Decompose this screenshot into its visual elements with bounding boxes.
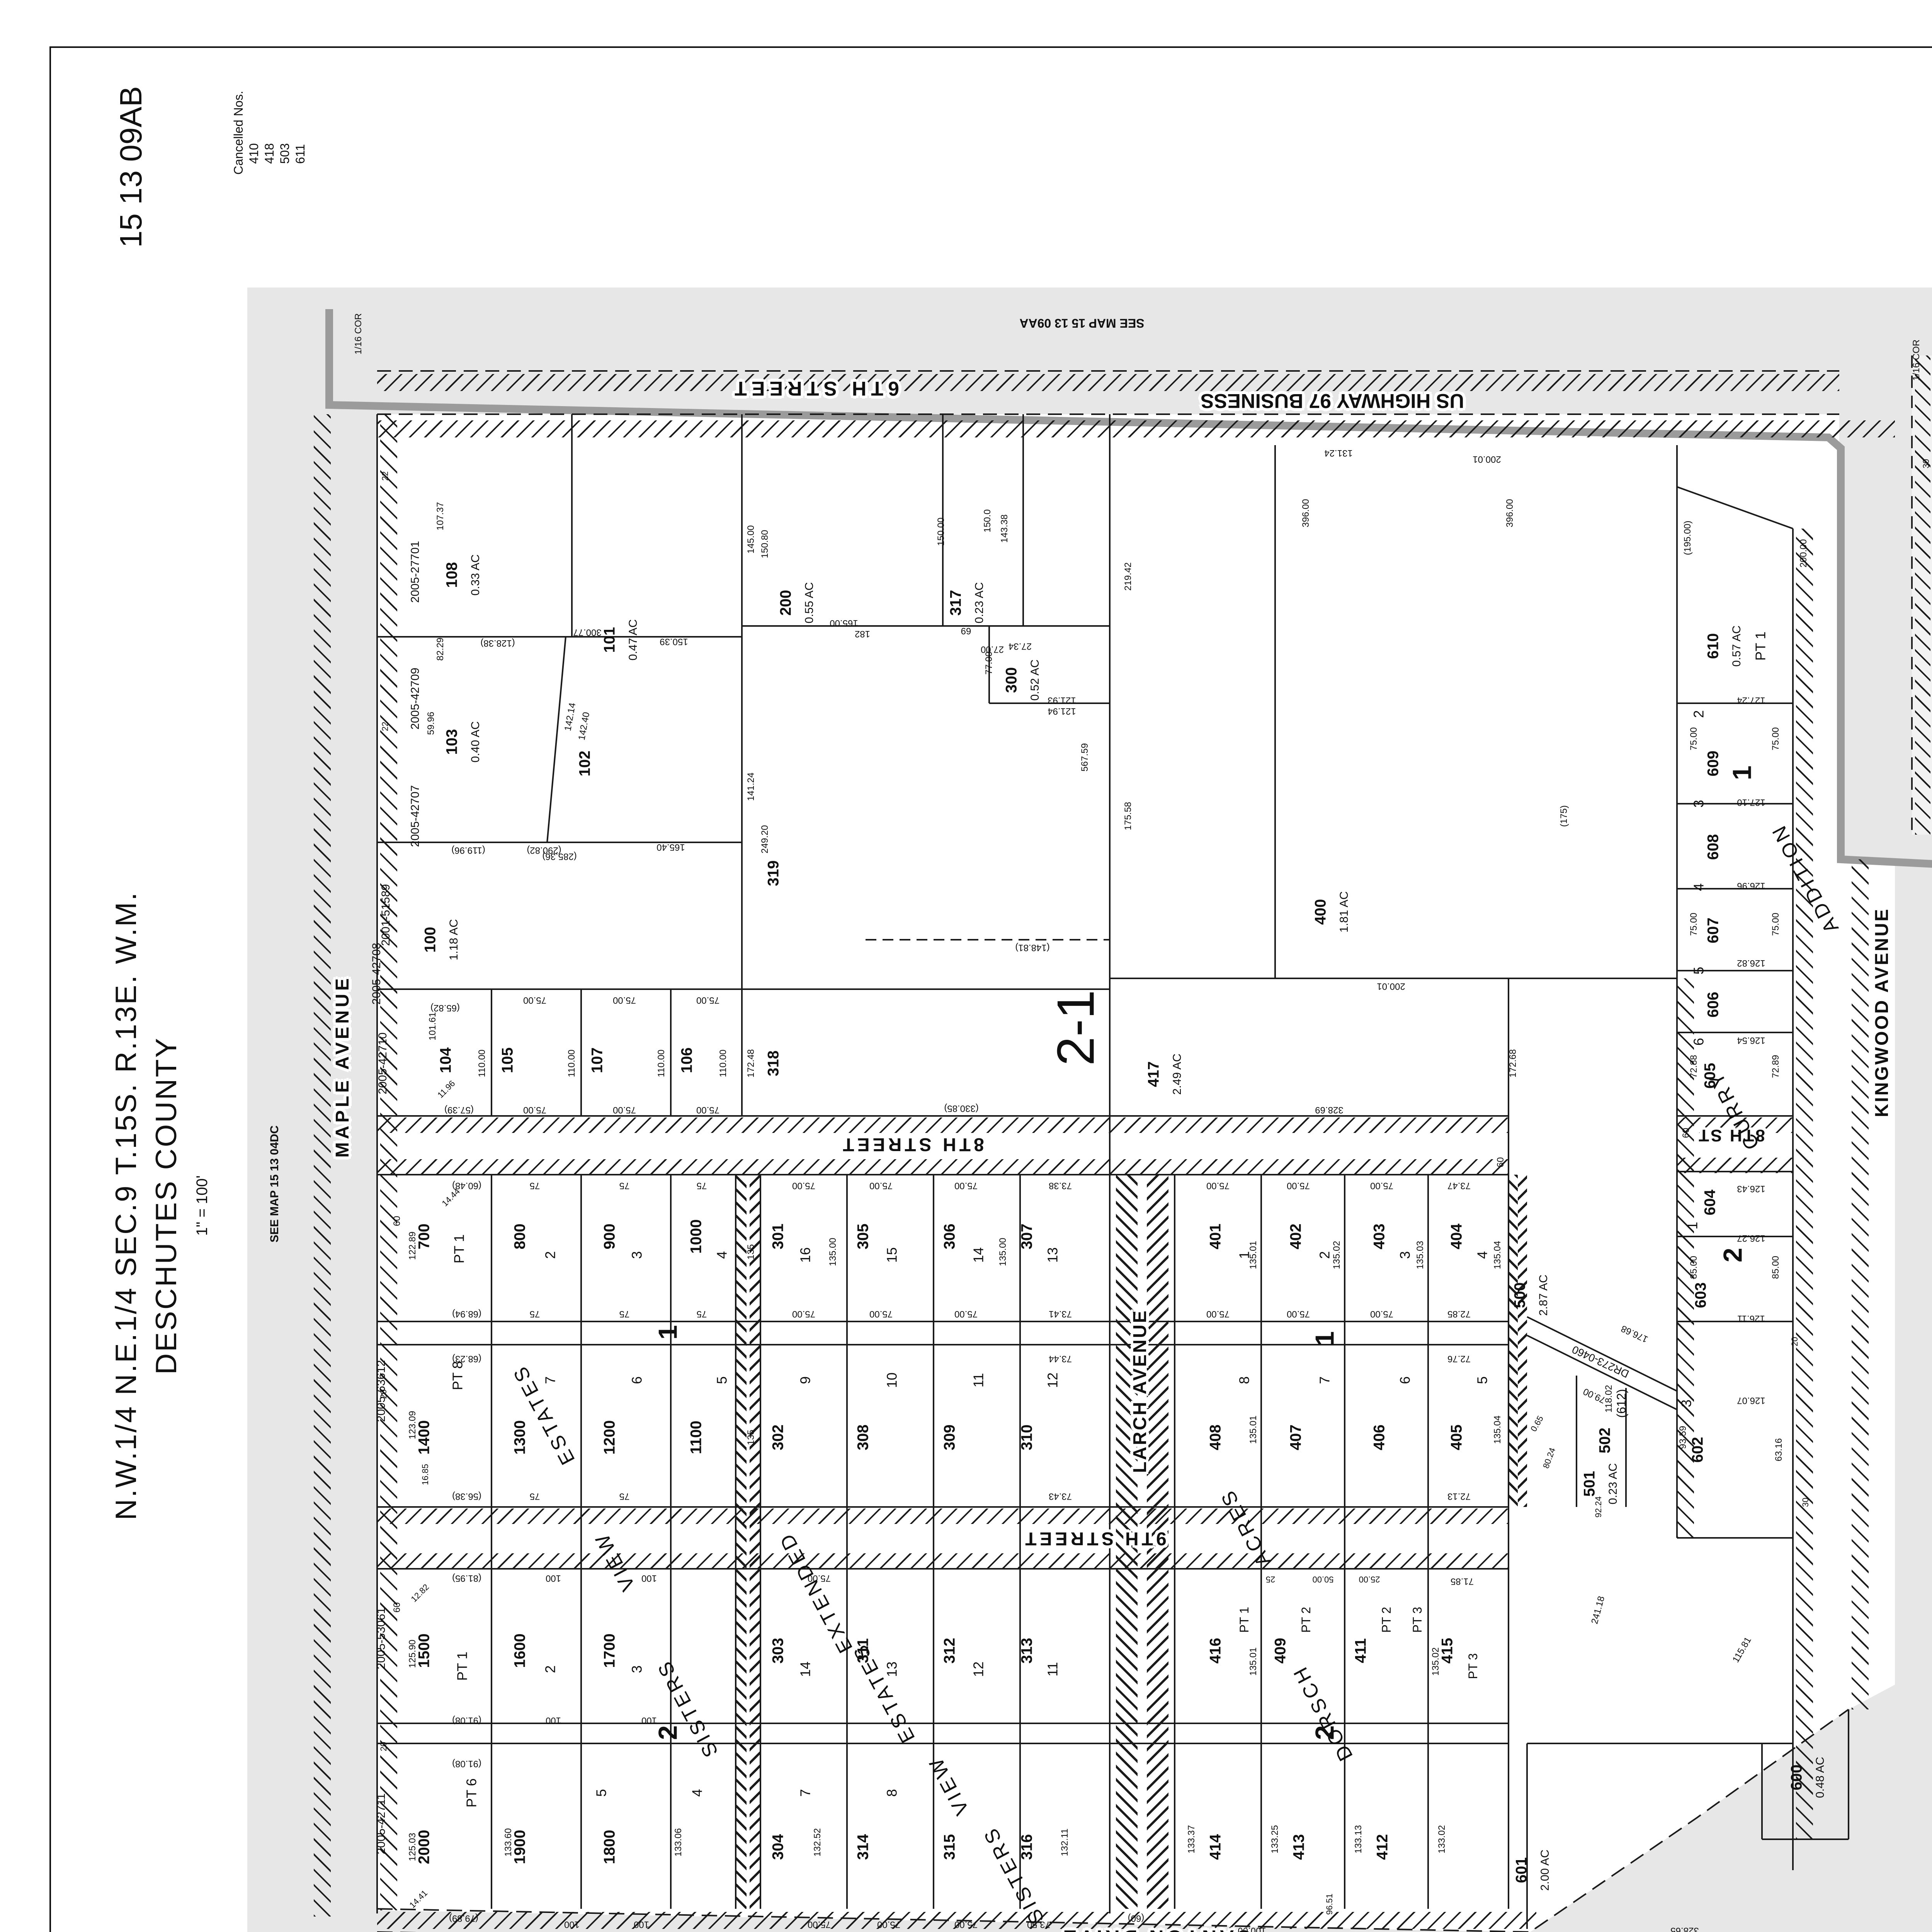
map-label: 20 [1793,1337,1802,1347]
map-label: 126.96 [1737,879,1765,889]
map-label: 125.03 [409,1833,419,1861]
map-label: 135.01 [1250,1647,1260,1675]
map-label: 85.00 [1772,1256,1782,1279]
map-label: 407 [1290,1425,1306,1451]
map-label: 25.00 [1359,1572,1380,1581]
map-label: 4 [691,1789,706,1797]
map-label: 2005-53061 [376,1607,388,1669]
map-label: 145.00 [748,525,758,553]
map-label: 135.04 [1494,1415,1504,1444]
map-label: 75.00 [954,1918,978,1928]
map-label: 75.00 [696,993,719,1003]
map-label: 13 [1047,1247,1062,1263]
map-label: 2005-42709 [410,668,422,730]
map-label: 93.59 [1680,1426,1690,1449]
map-label: 300.77 [573,626,601,636]
map-label: (60) [1128,1912,1145,1922]
map-label: 72.13 [1447,1490,1471,1500]
map-label: 3 [1680,1400,1696,1407]
map-label: 2 [1319,1251,1334,1259]
map-label: 2 [655,1725,683,1740]
map-label: 1.18 AC [448,919,461,961]
map-label: 9TH STREET [1022,1528,1166,1548]
map-label: 135.00 [1000,1238,1010,1266]
map-label: 301 [772,1224,789,1250]
map-label: US HIGHWAY 97 BUSINESS [1201,389,1464,411]
map-label: 2005-42710 [377,1032,389,1094]
map-label: 303 [772,1638,789,1664]
map-label: 75.00 [1206,1307,1230,1317]
plat-map-sheet: 15 13 09AB 15 13 09AB Cancelled Nos. 410… [0,0,1932,1932]
map-label: 77.00 [986,651,996,675]
map-label: 501 [1583,1471,1600,1497]
map-label: 302 [772,1425,789,1451]
map-label: 175.58 [1125,802,1135,830]
map-label: 126.43 [1737,1182,1765,1192]
map-label: 502 [1599,1428,1616,1454]
map-label: 103 [446,729,463,755]
map-label: 0.33 AC [470,554,482,596]
map-label: 133.06 [675,1828,685,1856]
map-label: 14.41 [410,1890,431,1912]
map-label: 69 [961,624,971,634]
map-label: 72.89 [1772,1055,1782,1078]
map-label: 14.44 [442,1189,464,1210]
map-label: 401 [1209,1224,1226,1250]
map-label: 1500 [418,1634,435,1668]
map-label: 609 [1707,751,1724,777]
map-label: SISTERS [979,1822,1049,1927]
map-label: 311 [857,1638,874,1663]
map-label: 182 [855,627,870,637]
map-label: 135.02 [1333,1241,1344,1269]
map-label: 20 [382,1742,391,1752]
map-label: 73.44 [1049,1352,1072,1362]
map-label: 75 [697,1307,707,1317]
map-label: 80.24 [1544,1447,1560,1471]
map-label: (330.85) [944,1102,978,1112]
map-label: 0.57 AC [1731,626,1743,667]
map-label: PT 1 [1755,631,1770,660]
map-label: 396.00 [1303,499,1313,527]
map-label: 30 [1804,1498,1813,1507]
map-label: (91.08) [452,1757,481,1767]
map-label: 415 [1441,1638,1458,1664]
map-label: 249.20 [762,825,772,853]
map-label: VIEW [925,1752,974,1818]
map-label: 3 [1693,800,1708,808]
map-label: 142.40 [578,712,593,742]
map-label: 110.00 [479,1049,489,1077]
map-label: 172.68 [1510,1049,1520,1077]
map-label: 5 [595,1789,611,1797]
map-label: 9 [799,1376,815,1384]
map-label: 133.37 [1188,1825,1198,1853]
map-label: 142.14 [565,702,579,732]
map-label: 75.00 [1370,1179,1393,1189]
map-label: 118.02 [1605,1385,1616,1413]
map-label: 2 [1720,1248,1748,1262]
map-label: PT 1 [453,1234,468,1263]
map-label: 102 [579,751,595,777]
map-label: 73.38 [1049,1179,1072,1189]
map-label: 2 [544,1665,560,1673]
map-label: 72.76 [1447,1352,1471,1362]
map-label: 2001-51589 [380,884,393,946]
map-label: 100 [641,1714,657,1724]
map-label: 135.04 [1494,1241,1504,1269]
map-label: 8 [886,1789,901,1797]
map-label: 1400 [418,1420,435,1455]
map-label: 6 [631,1376,646,1384]
map-label: 6 [1693,1038,1708,1046]
map-label: (195.00) [1684,520,1694,555]
map-label: 200.00 [1800,539,1810,567]
map-label: KINGWOOD AVENUE [1872,908,1893,1117]
map-label: 2 [544,1251,560,1259]
map-label: 800 [514,1224,531,1250]
map-label: 319 [767,861,784,886]
map-label: 15 [886,1247,901,1263]
map-label: 313 [1021,1638,1037,1664]
map-label: 300 [1005,667,1022,693]
map-label: 135.03 [1417,1241,1427,1269]
map-label: 2.00 AC [1539,1850,1552,1891]
map-label: 3 [631,1665,646,1673]
map-label: 50.00 [1312,1572,1333,1581]
map-label: 606 [1707,992,1724,1018]
map-label: 1 [1729,765,1757,780]
map-label: SEE MAP 15 13 04DC [269,1126,281,1243]
map-label: 603 [1695,1282,1711,1308]
map-label: 133.13 [1355,1825,1365,1853]
map-label: 126.54 [1737,1034,1765,1044]
map-label: 71.85 [1451,1575,1474,1585]
map-label: 318 [767,1051,784,1077]
map-label: 75.00 [877,1918,900,1928]
map-label: 11.96 [438,1081,459,1102]
map-label: 121.94 [1048,704,1076,714]
map-label: PT 2 [1301,1607,1315,1633]
map-label: 14 [973,1247,988,1263]
map-label: 123.09 [409,1411,419,1439]
map-label: 100.00 [1238,1924,1266,1932]
map-label: 328.69 [1315,1103,1343,1113]
map-label: 110.00 [658,1049,668,1077]
map-label: 75.00 [613,1103,636,1113]
map-label: 1/16 COR [355,313,365,355]
map-label: 604 [1704,1190,1721,1216]
map-label: 75.00 [523,993,546,1003]
map-label: 126.11 [1737,1312,1765,1322]
map-label: 60 [1497,1157,1507,1168]
map-label: 72.85 [1447,1307,1471,1317]
map-label: 404 [1451,1224,1467,1250]
map-label: 135.02 [1432,1647,1442,1675]
map-label: 75.00 [869,1307,893,1317]
map-label: 8 [1238,1376,1253,1384]
map-label: (290.82) [527,844,561,854]
map-label: 2.49 AC [1172,1054,1184,1095]
map-label: 176.68 [1620,1322,1650,1343]
map-label: 59.96 [428,712,438,735]
map-label: 2000 [418,1830,435,1864]
map-label: 172.48 [748,1049,758,1077]
map-label: 5 [1693,967,1708,975]
map-label: 3 [1399,1251,1414,1259]
map-label: 610 [1707,633,1724,659]
map-label: 75.00 [792,1179,815,1189]
map-label: 75.00 [1370,1307,1393,1317]
map-label: 317 [950,590,966,616]
map-label: 700 [418,1224,435,1250]
map-label: 75.00 [1772,727,1782,750]
map-label: 0.40 AC [470,721,482,763]
map-label: (56.38) [452,1490,481,1500]
map-label: 75.00 [613,993,636,1003]
map-label: 1 [1687,1222,1702,1230]
map-label: 12.82 [411,1584,433,1606]
map-label: 165.00 [830,616,858,626]
map-label: 150.80 [762,530,772,558]
map-label: 403 [1373,1224,1390,1250]
map-label: 133.02 [1439,1825,1449,1853]
map-label: 75.00 [808,1918,831,1928]
map-label: 63.16 [1776,1438,1786,1461]
map-label: 406 [1373,1425,1390,1451]
map-label: 25 [1266,1572,1276,1581]
map-label: 396.00 [1507,499,1517,527]
map-label: 2 [1693,710,1708,718]
map-label: PT 6 [466,1778,481,1807]
map-label: 22 [383,471,393,481]
map-label: 12 [973,1662,988,1677]
map-label: 72.88 [1690,1055,1701,1078]
map-label: 409 [1274,1638,1291,1664]
map-label: 100 [634,1918,649,1928]
map-label: 75.00 [1690,913,1701,936]
map-label: 92.24 [1597,1496,1606,1517]
map-label: 75.00 [954,1307,978,1317]
map-label: 12 [1047,1372,1062,1388]
map-label: (128.38) [480,636,515,646]
map-label: 602 [1692,1437,1708,1463]
map-label: 110.00 [568,1049,578,1077]
map-label: 1100 [690,1421,707,1454]
map-label: SEE MAP 15 13 09AA [1019,315,1144,328]
map-label: 608 [1707,834,1724,860]
map-label: 2005-42707 [410,785,422,847]
map-label: DORSCH [1289,1661,1357,1764]
map-label: 101.61 [429,1012,439,1040]
map-label: 316 [1021,1834,1037,1860]
map-label: PT 8 [452,1361,467,1390]
map-label: 6TH STREET [730,377,899,399]
map-label: 4 [716,1251,731,1259]
map-label: 131.24 [1324,446,1352,456]
map-label: 1.81 AC [1338,891,1351,933]
map-label: 2 [1312,1725,1340,1740]
map-label: 126.27 [1737,1231,1765,1242]
map-label: 306 [944,1224,960,1250]
map-label: (612) [1616,1389,1630,1418]
map-label: 413 [1293,1834,1310,1860]
map-label: 7 [544,1376,560,1384]
map-label: 73.41 [1049,1307,1072,1317]
map-label: PT 1 [456,1651,471,1680]
map-label: 0.47 AC [628,619,640,661]
map-label: 79.00 [1582,1385,1607,1404]
map-label: 13 [886,1662,901,1677]
map-label: 96.51 [1328,1893,1337,1915]
map-label: 307 [1021,1224,1037,1250]
map-label: 75 [530,1179,540,1189]
map-label: 500 [1514,1282,1531,1308]
map-label: 126.07 [1737,1394,1765,1404]
map-label: 8TH STREET [840,1134,984,1154]
map-label: 11 [1047,1662,1062,1676]
map-label: 127.24 [1737,694,1765,704]
map-label: 900 [604,1224,620,1250]
map-label: 75.00 [1690,727,1701,750]
map-label: 75.00 [869,1179,893,1189]
map-label: 135.01 [1250,1415,1260,1444]
map-label: (60.48) [452,1179,481,1189]
map-label: 607 [1707,918,1724,944]
map-label: 7 [1319,1376,1334,1384]
map-label: 75 [619,1179,630,1189]
map-label: 75.00 [1206,1179,1230,1189]
map-label: 2005-42708 [371,943,383,1005]
map-label: 75.00 [1287,1179,1310,1189]
map-label: 22 [383,722,393,731]
map-label: 312 [944,1638,960,1664]
map-label: 150.39 [660,635,688,645]
map-label: 1/16 COR [1913,340,1923,381]
map-label: 5 [1476,1376,1492,1384]
map-label: 121.93 [1048,694,1076,704]
map-label: 135.00 [830,1238,840,1266]
map-label: ACRES [1216,1485,1275,1570]
map-label: 10 [886,1372,901,1388]
map-label: 75.00 [1287,1307,1310,1317]
map-label: 416 [1209,1638,1226,1664]
map-label: 75 [619,1490,630,1500]
map-label: 75 [530,1307,540,1317]
map-label: 200.01 [1377,980,1405,990]
map-label: 600 [1791,1765,1807,1791]
map-label: 1 [1312,1331,1340,1346]
map-label: 108 [446,562,463,588]
map-label: 1000 [690,1219,707,1254]
map-label: 414 [1209,1834,1226,1860]
map-label: 309 [944,1425,960,1451]
map-label: 75.00 [808,1571,831,1582]
map-label: 310 [1021,1425,1037,1451]
map-label: 75.00 [1772,913,1782,936]
map-label: 73.47 [1447,1179,1471,1189]
map-label: 2-1 [1049,990,1106,1066]
map-label: 16 [799,1247,815,1263]
map-label: PT 3 [1468,1653,1481,1679]
map-label: 135.01 [1250,1241,1260,1269]
map-label: 100 [564,1918,580,1928]
map-label: 100 [546,1714,561,1724]
map-label: 141.24 [748,772,758,801]
map-label: 150.00 [938,517,948,546]
map-label: (81.95) [452,1571,481,1582]
map-label: 0.23 AC [1607,1463,1620,1505]
map-label: 75 [697,1179,707,1189]
map-label: DR273-0460 [1571,1342,1632,1378]
map-label: 75.00 [523,1103,546,1113]
map-label: 4 [1693,883,1708,891]
map-label: 30 [1924,459,1932,469]
map-label: 567.59 [1082,743,1092,771]
map-label: 16.85 [423,1464,433,1485]
map-label: 1700 [604,1634,620,1668]
map-label: 2005-42711 [376,1793,388,1854]
map-label: 106 [681,1048,697,1073]
map-label: 107.37 [437,502,447,530]
map-label: 405 [1451,1425,1467,1451]
map-label: 315 [944,1834,960,1860]
map-label: 0.48 AC [1815,1757,1827,1798]
map-label: LARCH AVENUE [1131,1309,1151,1473]
map-label: 417 [1148,1061,1164,1087]
map-labels-layer: SEE MAP 15 13 09AASEE MAP 15 13 04DCSEE … [0,0,1932,1932]
map-label: 20 [382,1389,391,1399]
map-label: 143.38 [1001,514,1011,543]
map-label: (68.23) [452,1352,481,1362]
map-label: 14 [799,1662,815,1677]
map-label: 411 [1355,1638,1371,1663]
map-label: 408 [1209,1425,1226,1451]
map-label: 402 [1290,1224,1306,1250]
map-label: 27.34 [1009,639,1032,650]
map-label: 135 [748,1244,758,1260]
map-label: 132.11 [1061,1828,1071,1856]
map-label: 328.65 [1670,1924,1699,1932]
map-label: 104 [440,1048,456,1073]
map-label: 1800 [604,1830,620,1864]
map-label: 75.00 [696,1103,719,1113]
map-label: SISTERS [653,1655,723,1760]
map-label: 127.10 [1737,796,1765,806]
map-label: 601 [1515,1857,1532,1883]
map-label: 0.55 AC [804,582,816,624]
map-label: 11 [973,1373,988,1387]
map-label: (79.89) [449,1912,478,1922]
map-label: CANYON DRIVE [1061,1926,1252,1932]
map-label: (91.08) [452,1714,481,1724]
map-label: 73.43 [1049,1490,1072,1500]
map-label: 122.89 [409,1231,419,1260]
map-label: 150.0 [984,509,994,532]
map-label: PT 1 [1239,1607,1253,1633]
map-label: 200 [780,590,796,616]
map-label: 75.00 [792,1307,815,1317]
map-label: 314 [857,1834,874,1860]
map-label: 105 [502,1048,518,1073]
map-label: 412 [1376,1834,1393,1860]
map-label: 135 [748,1430,758,1445]
map-label: (119.96) [451,844,485,854]
map-label: 1900 [514,1830,531,1864]
map-label: 1300 [514,1420,531,1455]
map-label: 2.87 AC [1538,1275,1550,1316]
map-label: (57.39) [444,1103,474,1113]
